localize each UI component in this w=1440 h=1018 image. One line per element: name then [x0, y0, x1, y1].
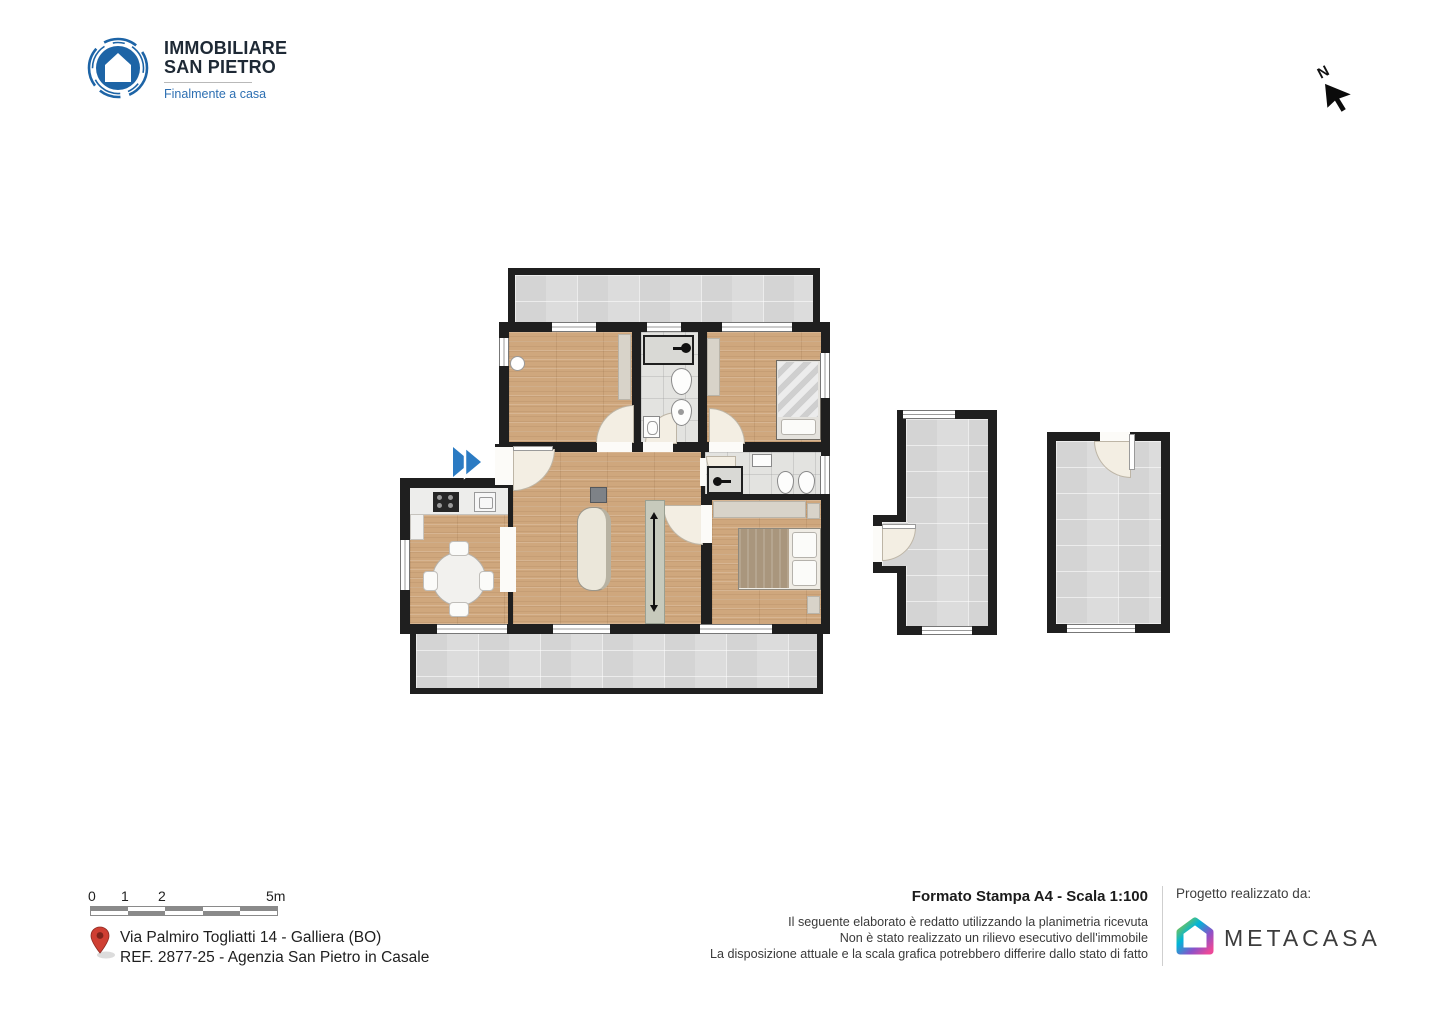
nightstand: [807, 596, 820, 614]
terrace-bottom: [410, 624, 823, 694]
double-bed: [738, 528, 821, 590]
wall-lamp: [510, 356, 525, 371]
door-opening: [597, 442, 632, 452]
credit-brand-name: METACASA: [1224, 925, 1381, 952]
north-indicator: N: [1312, 62, 1358, 120]
window: [700, 624, 772, 634]
dining-table: [432, 552, 486, 606]
address-line2: REF. 2877-25 - Agenzia San Pietro in Cas…: [120, 948, 429, 968]
north-arrow-cursor-icon: [1324, 80, 1354, 119]
door-opening: [709, 442, 743, 452]
door-opening: [643, 442, 673, 452]
address-line1: Via Palmiro Togliatti 14 - Galliera (BO): [120, 928, 429, 948]
window: [647, 322, 681, 332]
wardrobe: [707, 338, 720, 396]
entrance-opening: [495, 447, 513, 485]
terrace-top: [508, 268, 820, 330]
agency-name-line1: IMMOBILIARE: [164, 39, 287, 58]
kitchen-sink-icon: [474, 492, 496, 512]
window: [722, 322, 792, 332]
door-leaf: [1129, 434, 1135, 470]
chair: [423, 571, 438, 591]
scale-bar: 0 1 2 5m: [88, 888, 288, 922]
location-pin-icon: [89, 925, 119, 966]
print-format-title: Formato Stampa A4 - Scala 1:100: [678, 888, 1148, 905]
scale-tick-1: 1: [121, 888, 129, 904]
scale-bar-segments: [90, 906, 278, 916]
shower: [707, 466, 743, 494]
disclaimer-line3: La disposizione attuale e la scala grafi…: [678, 946, 1148, 962]
window: [400, 540, 410, 590]
chair: [479, 571, 494, 591]
window: [903, 410, 955, 419]
metacasa-logo-icon: [1176, 917, 1214, 960]
wardrobe: [713, 501, 806, 518]
door-opening: [700, 458, 706, 486]
window: [820, 456, 830, 494]
window: [437, 624, 507, 634]
tv-table: [590, 487, 607, 503]
disclaimer-line1: Il seguente elaborato è redatto utilizza…: [678, 914, 1148, 930]
disclaimer-line2: Non è stato realizzato un rilievo esecut…: [678, 930, 1148, 946]
single-bed: [776, 360, 821, 440]
door-opening: [701, 505, 712, 543]
floor-plan: [400, 260, 1180, 696]
stove-icon: [433, 492, 459, 512]
window: [820, 353, 830, 398]
entrance-arrow-icon: [450, 442, 492, 487]
logo-divider: [164, 82, 252, 83]
bathroom-sink: [752, 454, 772, 467]
shower: [643, 335, 694, 365]
chair: [449, 541, 469, 556]
entrance-door-leaf: [513, 446, 553, 451]
sofa: [577, 507, 611, 591]
chair: [449, 602, 469, 617]
scale-tick-5m: 5m: [266, 888, 285, 904]
sliding-door-arrow-down: [650, 605, 658, 612]
window: [1067, 624, 1135, 633]
window: [552, 322, 596, 332]
scale-tick-0: 0: [88, 888, 96, 904]
sliding-door-track: [653, 518, 655, 606]
agency-name-line2: SAN PIETRO: [164, 58, 287, 77]
agency-logo-icon: [84, 34, 152, 107]
print-info-block: Formato Stampa A4 - Scala 1:100 Il segue…: [678, 888, 1148, 962]
wardrobe: [618, 334, 631, 400]
door-opening: [1100, 432, 1130, 441]
door-leaf: [882, 524, 916, 529]
sliding-door-arrow-up: [650, 512, 658, 519]
footer-divider: [1162, 886, 1163, 966]
kitchen-opening: [500, 527, 516, 592]
bathroom-sink: [643, 416, 660, 438]
scale-tick-2: 2: [158, 888, 166, 904]
door-opening: [873, 526, 882, 562]
window: [922, 626, 972, 635]
annex-a-floor: [906, 419, 988, 626]
kitchen-cabinet: [410, 514, 424, 540]
credit-block: Progetto realizzato da: METACASA: [1176, 886, 1416, 960]
property-address: Via Palmiro Togliatti 14 - Galliera (BO)…: [120, 928, 429, 967]
agency-logo: IMMOBILIARE SAN PIETRO Finalmente a casa: [84, 32, 384, 108]
window: [499, 338, 509, 366]
credit-label: Progetto realizzato da:: [1176, 886, 1416, 901]
window: [553, 624, 610, 634]
agency-tagline: Finalmente a casa: [164, 87, 287, 101]
nightstand: [807, 503, 820, 519]
